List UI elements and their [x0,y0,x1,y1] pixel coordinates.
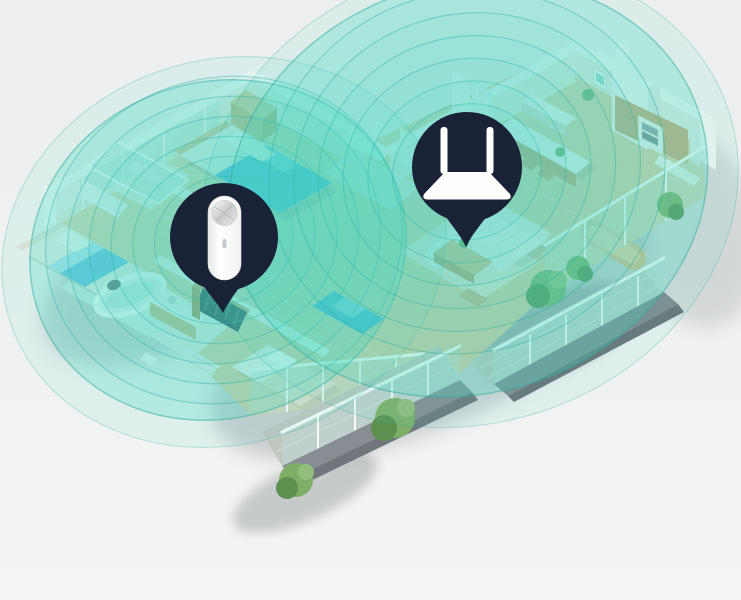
pin-bubble [412,112,522,222]
wifi-coverage-illustration [0,0,741,600]
scene-canvas [0,0,741,600]
antenna [487,127,494,174]
wifi-extender-icon [208,196,241,280]
antenna [441,127,448,174]
